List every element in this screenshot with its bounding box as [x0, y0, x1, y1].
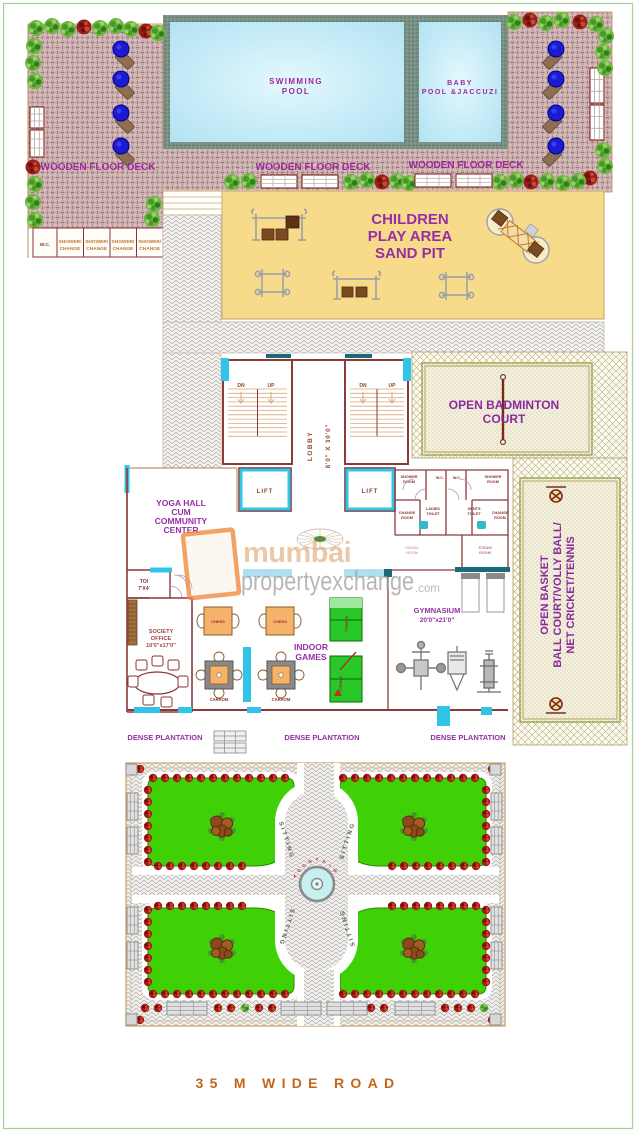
svg-text:CHANGE: CHANGE [139, 246, 161, 252]
svg-text:DENSE PLANTATION: DENSE PLANTATION [284, 733, 359, 742]
svg-text:ROOM: ROOM [494, 516, 506, 520]
svg-text:SHOWER/: SHOWER/ [85, 239, 109, 245]
svg-text:OFFICE: OFFICE [151, 636, 172, 642]
svg-text:GENTS: GENTS [467, 507, 481, 511]
svg-text:SHOWER: SHOWER [484, 475, 501, 479]
svg-text:DENSE PLANTATION: DENSE PLANTATION [127, 733, 202, 742]
svg-text:BABY: BABY [447, 80, 473, 87]
svg-text:WOODEN FLOOR DECK: WOODEN FLOOR DECK [41, 162, 157, 173]
svg-text:DN: DN [237, 383, 245, 389]
svg-text:W.C.: W.C. [453, 476, 461, 480]
svg-text:CHILDREN: CHILDREN [371, 211, 449, 228]
svg-text:OPEN BADMINTON: OPEN BADMINTON [449, 398, 559, 412]
svg-text:ROOM: ROOM [487, 480, 499, 484]
svg-text:mumbai: mumbai [243, 537, 351, 569]
svg-text:LIFT: LIFT [257, 489, 274, 495]
svg-text:TOILET: TOILET [467, 512, 481, 516]
svg-text:CHANGE: CHANGE [60, 246, 82, 252]
svg-text:STEAM: STEAM [478, 546, 491, 550]
svg-text:T.TENNIS: T.TENNIS [345, 615, 349, 632]
svg-text:OPEN BASKET: OPEN BASKET [539, 555, 551, 635]
svg-text:T: T [316, 857, 319, 862]
svg-text:8'0" X 30'0": 8'0" X 30'0" [326, 424, 332, 469]
svg-text:CARROM: CARROM [272, 697, 291, 702]
svg-text:SOCIETY: SOCIETY [149, 629, 174, 635]
svg-text:W.C.: W.C. [436, 476, 444, 480]
svg-text:I: I [329, 863, 330, 868]
svg-text:20'0"x21'0": 20'0"x21'0" [420, 617, 455, 624]
svg-text:O: O [297, 868, 301, 873]
svg-text:CHANGE: CHANGE [492, 511, 509, 515]
svg-text:propertyexchange: propertyexchange [241, 566, 414, 596]
svg-text:ROOM: ROOM [401, 516, 413, 520]
svg-text:W.C.: W.C. [40, 242, 50, 248]
svg-text:POOL &JACCUZI: POOL &JACCUZI [422, 89, 499, 96]
svg-text:NET CRICKET/TENNIS: NET CRICKET/TENNIS [565, 536, 577, 653]
svg-text:SHOWER/: SHOWER/ [112, 239, 136, 245]
svg-text:UP: UP [268, 383, 276, 389]
svg-text:WOODEN FLOOR DECK: WOODEN FLOOR DECK [409, 160, 525, 171]
svg-text:T.TENNIS: T.TENNIS [339, 675, 343, 692]
svg-text:LIFT: LIFT [362, 489, 379, 495]
svg-text:CHESS: CHESS [211, 619, 225, 624]
svg-text:DN: DN [359, 383, 367, 389]
svg-text:CHANGE: CHANGE [399, 511, 416, 515]
svg-text:SWIMMING: SWIMMING [269, 77, 323, 86]
svg-text:7'X4': 7'X4' [138, 586, 150, 592]
svg-text:35 M WIDE ROAD: 35 M WIDE ROAD [196, 1075, 401, 1091]
svg-text:10'0"x17'0": 10'0"x17'0" [146, 643, 176, 649]
svg-text:SHOWER/: SHOWER/ [59, 239, 83, 245]
svg-text:CHESS: CHESS [273, 619, 287, 624]
svg-text:SHOWER: SHOWER [400, 475, 417, 479]
svg-text:DENSE PLANTATION: DENSE PLANTATION [430, 733, 505, 742]
svg-text:GYMNASIUM: GYMNASIUM [414, 606, 461, 615]
svg-text:TOI: TOI [140, 579, 149, 585]
svg-text:UP: UP [389, 383, 397, 389]
svg-text:CHANGE: CHANGE [86, 246, 108, 252]
svg-text:CHANGE: CHANGE [113, 246, 135, 252]
svg-text:ROOM: ROOM [406, 551, 418, 555]
svg-text:POOL: POOL [282, 87, 310, 96]
svg-text:SAUNA: SAUNA [405, 546, 419, 550]
svg-text:CARROM: CARROM [210, 697, 229, 702]
svg-text:WOODEN FLOOR DECK: WOODEN FLOOR DECK [256, 162, 372, 173]
svg-text:F: F [294, 874, 297, 879]
svg-text:SHOWER/: SHOWER/ [138, 239, 162, 245]
svg-text:SAND PIT: SAND PIT [375, 245, 445, 262]
svg-text:.com: .com [415, 583, 440, 595]
svg-text:COURT: COURT [483, 412, 526, 426]
svg-text:ROOM: ROOM [479, 551, 491, 555]
svg-text:BALL COURT/VOLLY BALL/: BALL COURT/VOLLY BALL/ [552, 522, 564, 667]
svg-text:TOILET: TOILET [426, 512, 440, 516]
svg-text:PLAY AREA: PLAY AREA [368, 228, 453, 245]
svg-text:GAMES: GAMES [295, 652, 327, 662]
svg-text:LOBBY: LOBBY [307, 431, 314, 461]
svg-text:INDOOR: INDOOR [294, 642, 328, 652]
svg-text:LADIES: LADIES [426, 507, 440, 511]
